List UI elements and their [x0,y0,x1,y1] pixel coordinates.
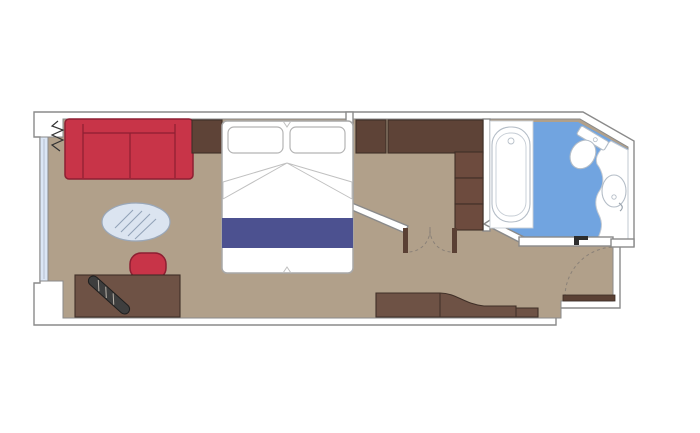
coffee-table [102,203,170,241]
bathroom-bottom-wall [519,237,613,246]
door-post-left [403,228,408,253]
bed-runner [222,218,353,248]
wardrobe-shelf [455,204,483,230]
double-bed [222,121,353,273]
sofa [65,119,193,179]
bathroom-step-wall [611,239,634,247]
door-post-right [452,228,457,253]
bathroom-left-wall [483,119,490,231]
wardrobe-shelf [455,178,483,204]
wardrobe [388,120,483,153]
wardrobe-shelf [455,152,483,178]
entrance-door-leaf [563,295,615,301]
bedside-table-left [192,120,222,153]
sofa-body [65,119,193,179]
bedside-table-right [356,120,386,153]
wardrobe-shelves [455,152,483,230]
pillow-right [290,127,345,153]
bathtub-drain [508,138,514,144]
bathtub [490,121,533,228]
washbasin-bowl [602,175,626,207]
coffee-table-top [102,203,170,241]
floor-plan [0,0,700,433]
pillow-left [228,127,283,153]
floor-plan-canvas [0,0,700,433]
